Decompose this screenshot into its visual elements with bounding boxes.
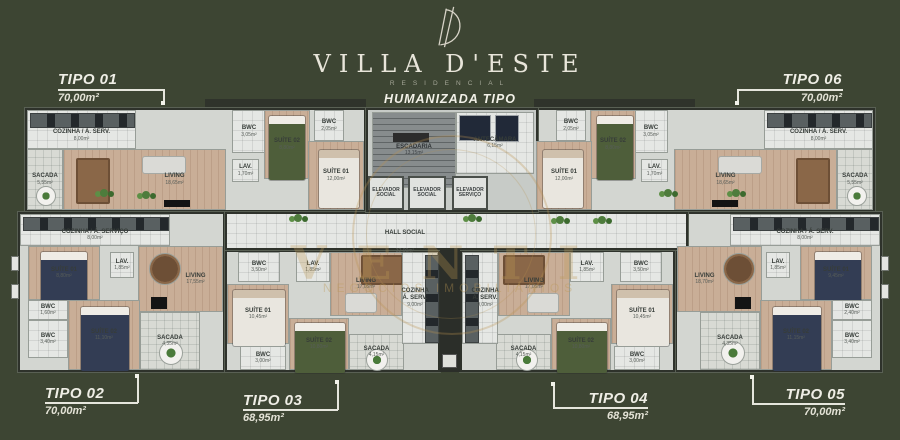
elevator-social-2: ELEVADOR SOCIAL	[408, 176, 446, 210]
room-living-tipo06: LIVING 18,65m²	[674, 149, 837, 210]
unit-area-tipo02: 70,00m²	[45, 405, 86, 417]
plant-icon	[556, 216, 564, 224]
connector-line	[553, 384, 555, 408]
room-area: 32,00m²	[396, 248, 414, 254]
room-cozinha-tipo01: COZINHA / Á. SERV. 8,00m²	[27, 110, 136, 149]
room-area: 6,15m²	[487, 143, 503, 149]
unit-label-tipo01: TIPO 01	[58, 71, 117, 88]
tv-icon	[164, 200, 190, 207]
room-suite01-tipo06: SUÍTE 01 12,00m²	[536, 141, 592, 210]
roof-strip	[205, 99, 366, 108]
room-lav-tipo06: LAV. 1,70m²	[641, 159, 668, 182]
room-name: COZINHA / Á. SERV.	[53, 129, 110, 136]
room-name: SUÍTE 01	[245, 308, 271, 315]
ac-unit-icon	[11, 284, 19, 299]
room-name: SACADA	[842, 173, 868, 180]
room-sacada-tipo05: SACADA 4,35m²	[700, 312, 760, 370]
room-area: 3,50m²	[251, 267, 267, 273]
room-name: SUÍTE 01	[629, 308, 655, 315]
room-area: 8,80m²	[279, 145, 295, 151]
unit-area-tipo05: 70,00m²	[745, 406, 845, 418]
room-area: 1,85m²	[770, 265, 786, 271]
room-area: 17,05m²	[357, 284, 375, 290]
room-sacada-tipo03: SACADA 4,15m²	[349, 334, 404, 370]
room-suite02-tipo03: SUÍTE 02 10,80m²	[289, 318, 349, 370]
room-name: LIVING	[524, 278, 544, 285]
room-area: 3,05m²	[643, 132, 659, 138]
room-area: 8,80m²	[56, 273, 72, 279]
connector-line	[752, 377, 754, 404]
room-name: LAV.	[581, 261, 594, 268]
plant-icon	[100, 189, 108, 197]
elevator-label: ELEVADOR SOCIAL	[370, 188, 402, 199]
room-name: SUÍTE 02	[600, 138, 626, 145]
room-bwc2-tipo02: BWC 3,40m²	[28, 320, 68, 358]
room-suite01-tipo05: SUÍTE 01 9,45m²	[800, 246, 872, 300]
room-name: BWC	[630, 352, 644, 359]
room-living-tipo02: LIVING 17,55m²	[138, 246, 223, 312]
room-name: LAV.	[648, 164, 661, 171]
tv-icon	[151, 297, 167, 309]
room-area: 9,00m²	[477, 302, 493, 308]
shaft-box	[442, 354, 457, 368]
room-cozinha-tipo02: COZINHA / Á. SERVIÇO 8,00m²	[20, 214, 170, 246]
room-area: 9,45m²	[828, 273, 844, 279]
room-bwc2-tipo05: BWC 3,40m²	[832, 320, 872, 358]
room-name: COZINHA / Á. SERVIÇO	[62, 229, 129, 236]
room-name: BWC	[41, 304, 55, 311]
room-lav-tipo05: LAV. 1,85m²	[766, 252, 790, 278]
room-living-tipo01: LIVING 18,65m²	[63, 149, 226, 210]
room-sacada-tipo06: SACADA 5,55m²	[837, 149, 873, 210]
room-name: COZINHA / Á. SERV.	[776, 229, 833, 236]
room-antecamara: ANTECÂMARA 6,15m²	[456, 112, 534, 174]
room-name: BWC	[41, 333, 55, 340]
room-name: BWC	[256, 352, 270, 359]
plant-icon	[664, 189, 672, 197]
ac-unit-icon	[11, 256, 19, 271]
room-area: 4,15m²	[369, 352, 385, 358]
sofa-icon	[345, 293, 377, 313]
room-bwc-tipo06: BWC 3,05m²	[634, 110, 668, 153]
room-bwc-tipo01: BWC 3,05m²	[232, 110, 266, 153]
tv-icon	[712, 200, 738, 207]
elevator-servico: ELEVADOR SERVIÇO	[452, 176, 488, 210]
connector-dot	[335, 380, 339, 384]
hall-label: HALL SOCIAL 32,00m²	[350, 221, 460, 257]
room-suite01-tipo03: SUÍTE 01 10,45m²	[227, 284, 289, 344]
room-area: 10,80m²	[310, 344, 328, 350]
round-dining-table-icon	[149, 253, 181, 285]
dining-table-icon	[796, 158, 830, 204]
room-name: LAV.	[116, 259, 129, 266]
room-name: SUÍTE 01	[323, 169, 349, 176]
brand-monogram-icon	[430, 5, 470, 49]
room-area: 10,45m²	[249, 314, 267, 320]
room-area: 3,40m²	[40, 339, 56, 345]
room-name: SUÍTE 02	[306, 338, 332, 345]
room-area: 11,15m²	[787, 335, 805, 341]
room-name: BWC	[564, 119, 578, 126]
room-bwc2-tipo06: BWC 2,05m²	[556, 110, 586, 141]
room-suite02-tipo06: SUÍTE 02 8,80m²	[590, 110, 636, 179]
room-name: SUÍTE 01	[551, 169, 577, 176]
room-suite02-tipo05: SUÍTE 02 11,15m²	[760, 300, 832, 370]
room-name: COZINHA / Á. SERV.	[790, 129, 847, 136]
room-area: 12,00m²	[327, 176, 345, 182]
room-suite02-tipo04: SUÍTE 02 10,80m²	[551, 318, 611, 370]
room-area: 11,10m²	[95, 335, 113, 341]
unit-area-tipo01: 70,00m²	[58, 92, 99, 104]
room-area: 13,15m²	[405, 150, 423, 156]
room-name: SACADA	[364, 346, 390, 353]
room-area: 8,00m²	[811, 136, 827, 142]
connector-line	[137, 376, 139, 403]
room-name: LIVING	[185, 273, 205, 280]
unit-area-tipo03: 68,95m²	[243, 412, 284, 424]
connector-line	[45, 402, 138, 404]
room-sacada-tipo01: SACADA 5,55m²	[27, 149, 63, 210]
round-dining-table-icon	[723, 253, 755, 285]
room-area: 5,55m²	[847, 180, 863, 186]
room-name: LIVING	[694, 273, 714, 280]
room-suite01-tipo04: SUÍTE 01 10,45m²	[611, 284, 673, 344]
room-cozinha-tipo06: COZINHA / Á. SERV. 8,00m²	[764, 110, 873, 149]
room-area: 4,35m²	[722, 341, 738, 347]
room-sacada-tipo02: SACADA 4,35m²	[140, 312, 200, 370]
room-name: ANTECÂMARA	[474, 137, 517, 144]
connector-dot	[750, 375, 754, 379]
ac-unit-icon	[881, 284, 889, 299]
room-area: 2,05m²	[563, 126, 579, 132]
room-area: 3,50m²	[633, 267, 649, 273]
room-cozinha-tipo05: COZINHA / Á. SERV. 8,00m²	[730, 214, 880, 246]
room-area: 9,00m²	[407, 302, 423, 308]
plant-icon	[598, 216, 606, 224]
room-name: BWC	[252, 261, 266, 268]
room-name: SUÍTE 02	[91, 329, 117, 336]
room-name: LAV.	[307, 261, 320, 268]
room-area: 17,55m²	[186, 279, 204, 285]
room-name: BWC	[322, 119, 336, 126]
room-area: 4,15m²	[516, 352, 532, 358]
room-living-tipo03: LIVING 17,05m²	[330, 252, 402, 316]
connector-line	[58, 89, 164, 91]
sofa-icon	[527, 293, 559, 313]
room-name: LIVING	[164, 173, 184, 180]
room-area: 1,85m²	[579, 267, 595, 273]
elevator-label: ELEVADOR SOCIAL	[410, 188, 444, 199]
room-living-tipo04: LIVING 17,05m²	[498, 252, 570, 316]
connector-dot	[161, 101, 165, 105]
plant-icon	[732, 189, 740, 197]
room-name: SACADA	[511, 346, 537, 353]
elevator-label: ELEVADOR SERVIÇO	[454, 188, 486, 199]
room-name: SACADA	[717, 335, 743, 342]
connector-dot	[135, 374, 139, 378]
room-name: BWC	[242, 125, 256, 132]
room-name: LAV.	[239, 164, 252, 171]
room-name: SACADA	[32, 173, 58, 180]
kitchen-counter-icon	[30, 113, 135, 128]
plant-icon	[142, 191, 150, 199]
plant-icon	[468, 214, 476, 222]
room-name: BWC	[634, 261, 648, 268]
connector-dot	[551, 382, 555, 386]
room-name: SACADA	[157, 335, 183, 342]
room-name: SUÍTE 02	[568, 338, 594, 345]
unit-label-tipo04: TIPO 04	[548, 390, 648, 407]
room-name: BWC	[845, 304, 859, 311]
room-name: LIVING	[715, 173, 735, 180]
tv-icon	[735, 297, 751, 309]
dining-table-icon	[76, 158, 110, 204]
room-area: 8,00m²	[87, 235, 103, 241]
room-area: 2,40m²	[844, 310, 860, 316]
room-area: 1,70m²	[647, 171, 663, 177]
unit-label-tipo03: TIPO 03	[243, 392, 302, 409]
room-bwc2-tipo03: BWC 3,00m²	[240, 346, 286, 370]
room-lav-tipo03: LAV. 1,85m²	[296, 252, 330, 282]
room-cozinha-tipo04: COZINHA Á. SERV. 9,00m²	[462, 252, 498, 344]
connector-line	[752, 403, 845, 405]
connector-line	[337, 382, 339, 410]
room-area: 1,85m²	[305, 267, 321, 273]
room-name: SUÍTE 01	[51, 267, 77, 274]
room-suite02-tipo02: SUÍTE 02 11,10m²	[68, 300, 140, 370]
room-bwc-tipo05: BWC 2,40m²	[832, 300, 872, 320]
unit-label-tipo02: TIPO 02	[45, 385, 104, 402]
room-name: LAV.	[772, 259, 785, 266]
unit-label-tipo06: TIPO 06	[742, 71, 842, 88]
room-name: LIVING	[356, 278, 376, 285]
room-area: 3,40m²	[844, 339, 860, 345]
room-area: 10,45m²	[633, 314, 651, 320]
sofa-icon	[718, 156, 762, 174]
unit-area-tipo06: 70,00m²	[742, 92, 842, 104]
room-area: 2,05m²	[321, 126, 337, 132]
roof-strip	[534, 99, 695, 108]
room-name: SUÍTE 02	[274, 138, 300, 145]
room-name: COZINHA Á. SERV.	[401, 288, 428, 301]
room-name: HALL SOCIAL	[385, 230, 425, 236]
room-name: ESCADARIA	[396, 144, 432, 151]
unit-area-tipo04: 68,95m²	[548, 410, 648, 422]
room-suite01-tipo02: SUÍTE 01 8,80m²	[28, 246, 100, 300]
room-area: 3,05m²	[241, 132, 257, 138]
room-suite01-tipo01: SUÍTE 01 12,00m²	[308, 141, 364, 210]
room-name: SUÍTE 01	[823, 267, 849, 274]
room-area: 18,65m²	[165, 180, 183, 186]
room-name: BWC	[845, 333, 859, 340]
connector-line	[243, 409, 338, 411]
connector-dot	[735, 101, 739, 105]
kitchen-counter-icon	[767, 113, 872, 128]
room-area: 18,70m²	[695, 279, 713, 285]
room-bwc-tipo03: BWC 3,50m²	[238, 252, 280, 282]
room-area: 8,00m²	[797, 235, 813, 241]
unit-label-tipo05: TIPO 05	[745, 386, 845, 403]
room-area: 5,55m²	[37, 180, 53, 186]
room-area: 1,70m²	[238, 171, 254, 177]
round-table-icon	[847, 186, 867, 206]
room-living-tipo05: LIVING 18,70m²	[677, 246, 762, 312]
room-area: 1,85m²	[114, 265, 130, 271]
room-area: 8,80m²	[605, 145, 621, 151]
round-table-icon	[36, 186, 56, 206]
room-area: 12,00m²	[555, 176, 573, 182]
room-lav-tipo04: LAV. 1,85m²	[570, 252, 604, 282]
room-lav-tipo01: LAV. 1,70m²	[232, 159, 259, 182]
ac-unit-icon	[881, 256, 889, 271]
room-suite02-tipo01: SUÍTE 02 8,80m²	[264, 110, 310, 179]
room-name: BWC	[644, 125, 658, 132]
sofa-icon	[142, 156, 186, 174]
room-area: 1,60m²	[40, 310, 56, 316]
room-bwc2-tipo01: BWC 2,05m²	[314, 110, 344, 141]
room-name: COZINHA Á. SERV.	[471, 288, 498, 301]
plant-icon	[294, 214, 302, 222]
elevator-social-1: ELEVADOR SOCIAL	[368, 176, 404, 210]
room-lav-tipo02: LAV. 1,85m²	[110, 252, 134, 278]
room-area: 10,80m²	[572, 344, 590, 350]
room-name: SUÍTE 02	[783, 329, 809, 336]
room-area: 4,35m²	[162, 341, 178, 347]
stair-rail-icon	[393, 133, 429, 142]
room-area: 18,65m²	[716, 180, 734, 186]
room-sacada-tipo04: SACADA 4,15m²	[496, 334, 551, 370]
room-area: 17,05m²	[525, 284, 543, 290]
connector-line	[553, 407, 648, 409]
room-bwc2-tipo04: BWC 3,00m²	[614, 346, 660, 370]
room-bwc-tipo04: BWC 3,50m²	[620, 252, 662, 282]
room-area: 3,00m²	[255, 358, 271, 364]
room-area: 8,00m²	[74, 136, 90, 142]
room-cozinha-tipo03: COZINHA Á. SERV. 9,00m²	[402, 252, 438, 344]
room-bwc-tipo02: BWC 1,60m²	[28, 300, 68, 320]
connector-line	[737, 89, 843, 91]
room-area: 3,00m²	[629, 358, 645, 364]
